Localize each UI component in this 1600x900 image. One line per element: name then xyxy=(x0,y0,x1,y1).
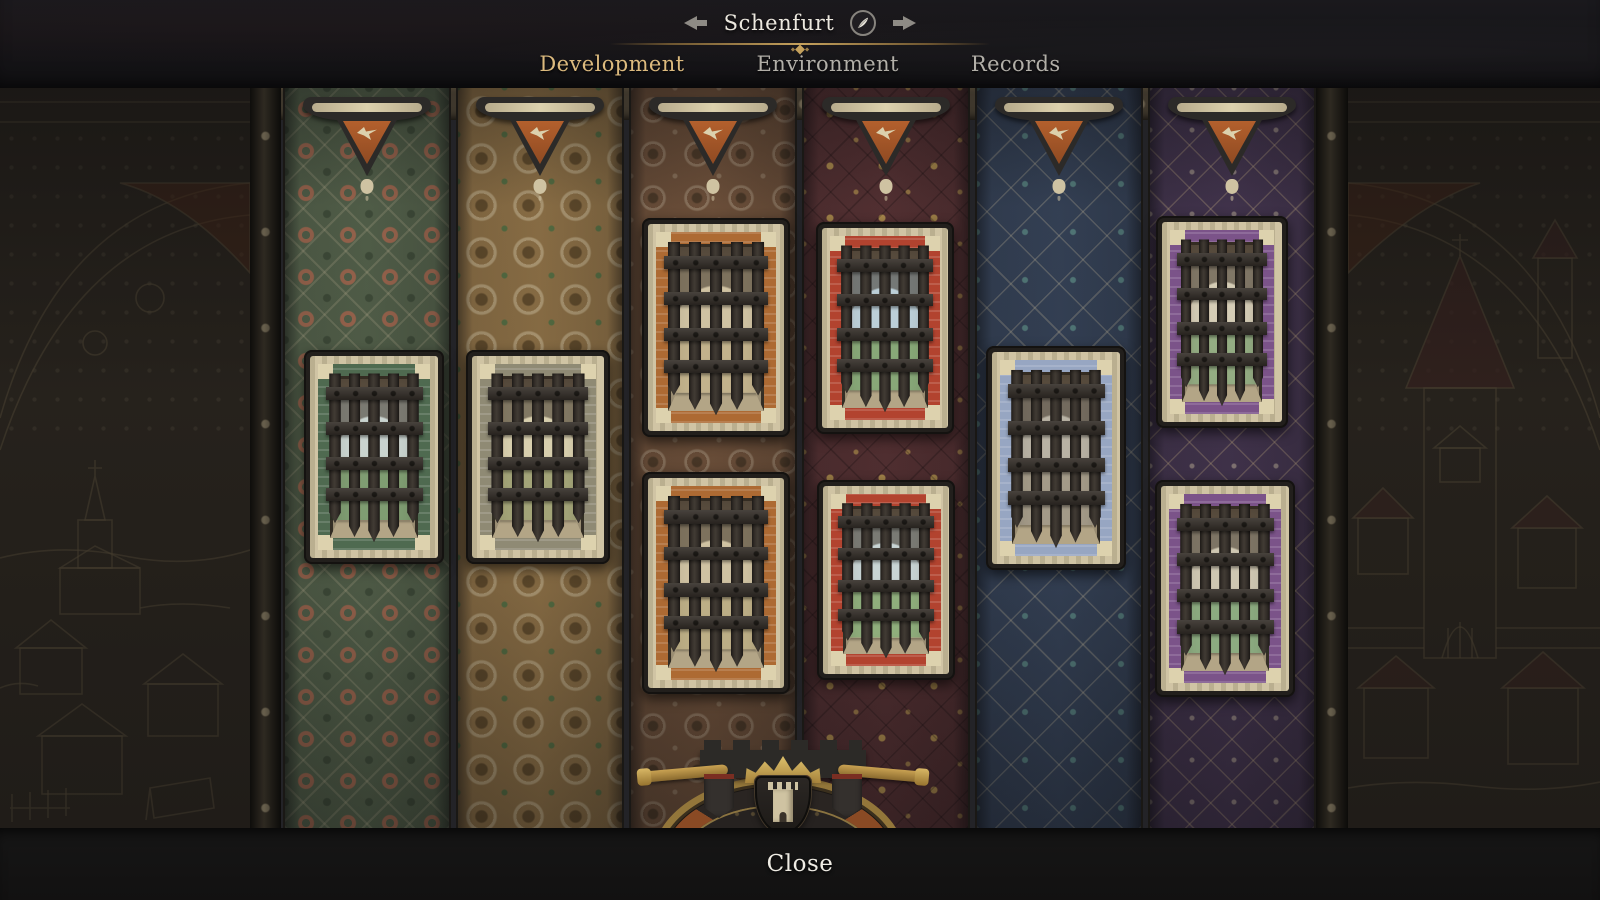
tab-bar: DevelopmentEnvironmentRecords xyxy=(0,50,1600,78)
locked-development-slot-red-2[interactable] xyxy=(817,480,955,680)
banner-purple xyxy=(1148,88,1316,828)
portcullis-bars-icon xyxy=(486,370,590,544)
locked-development-slot-brown-1[interactable] xyxy=(642,218,790,437)
banner-hanger-icon xyxy=(649,97,777,209)
tab-records[interactable]: Records xyxy=(965,50,1067,78)
banner-hanger-icon xyxy=(303,97,431,209)
locked-development-slot-green-1[interactable] xyxy=(304,350,444,564)
town-screen: Schenfurt DevelopmentEnvironmentRecords … xyxy=(0,0,1600,900)
portcullis-bars-icon xyxy=(1175,500,1275,677)
studded-border-left xyxy=(250,88,281,828)
arrow-right-icon[interactable] xyxy=(892,16,916,30)
banner-hanger-icon xyxy=(995,97,1123,209)
locked-development-slot-blue-1[interactable] xyxy=(986,346,1126,570)
banner-hanger-icon xyxy=(476,97,604,209)
portcullis-bars-icon xyxy=(837,500,935,660)
fresco-village-left xyxy=(0,88,250,828)
locked-development-slot-purple-2[interactable] xyxy=(1155,480,1295,697)
bottom-bar: Close xyxy=(0,828,1600,900)
locked-development-slot-brown-2[interactable] xyxy=(642,472,790,694)
studded-border-right xyxy=(1316,88,1348,828)
banner-red xyxy=(802,88,970,828)
portcullis-bars-icon xyxy=(324,370,424,544)
title-row: Schenfurt xyxy=(0,9,1600,37)
fresco-shade xyxy=(1348,88,1600,828)
close-button[interactable]: Close xyxy=(737,845,864,883)
top-bar: Schenfurt DevelopmentEnvironmentRecords xyxy=(0,0,1600,88)
portcullis-bars-icon xyxy=(1006,366,1106,550)
arrow-left-icon[interactable] xyxy=(684,16,708,30)
locked-development-slot-red-1[interactable] xyxy=(816,222,954,434)
portcullis-bars-icon xyxy=(662,492,770,674)
fresco-town-right xyxy=(1348,88,1600,828)
fresco-shade xyxy=(0,88,250,828)
quill-icon[interactable] xyxy=(850,10,876,36)
tab-environment[interactable]: Environment xyxy=(751,50,905,78)
banner-hanger-icon xyxy=(822,97,950,209)
locked-development-slot-purple-1[interactable] xyxy=(1156,216,1288,428)
banner-hanger-icon xyxy=(1168,97,1296,209)
locked-development-slot-tan-1[interactable] xyxy=(466,350,610,564)
page-title: Schenfurt xyxy=(724,11,835,35)
tab-development[interactable]: Development xyxy=(533,50,690,78)
portcullis-bars-icon xyxy=(1176,236,1268,408)
banner-brown xyxy=(629,88,797,828)
portcullis-bars-icon xyxy=(662,238,770,417)
portcullis-bars-icon xyxy=(836,242,934,414)
